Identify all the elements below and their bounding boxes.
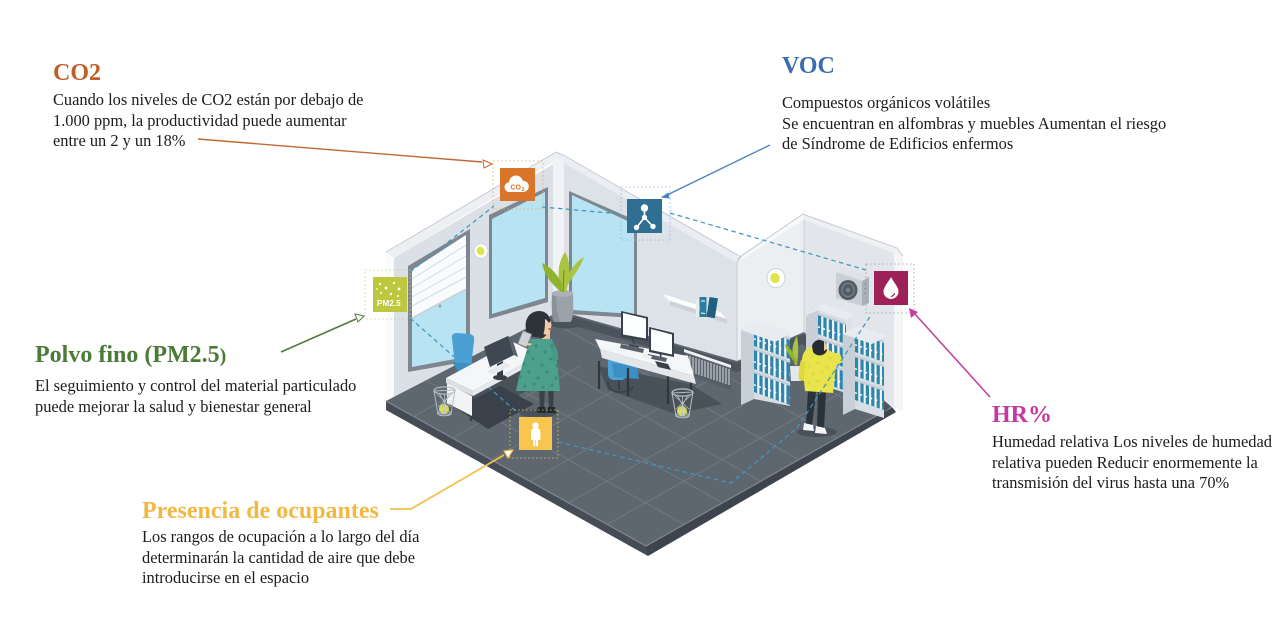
svg-text:CO: CO: [511, 185, 522, 192]
svg-text:2: 2: [522, 187, 525, 193]
svg-text:PM2.5: PM2.5: [377, 299, 401, 308]
